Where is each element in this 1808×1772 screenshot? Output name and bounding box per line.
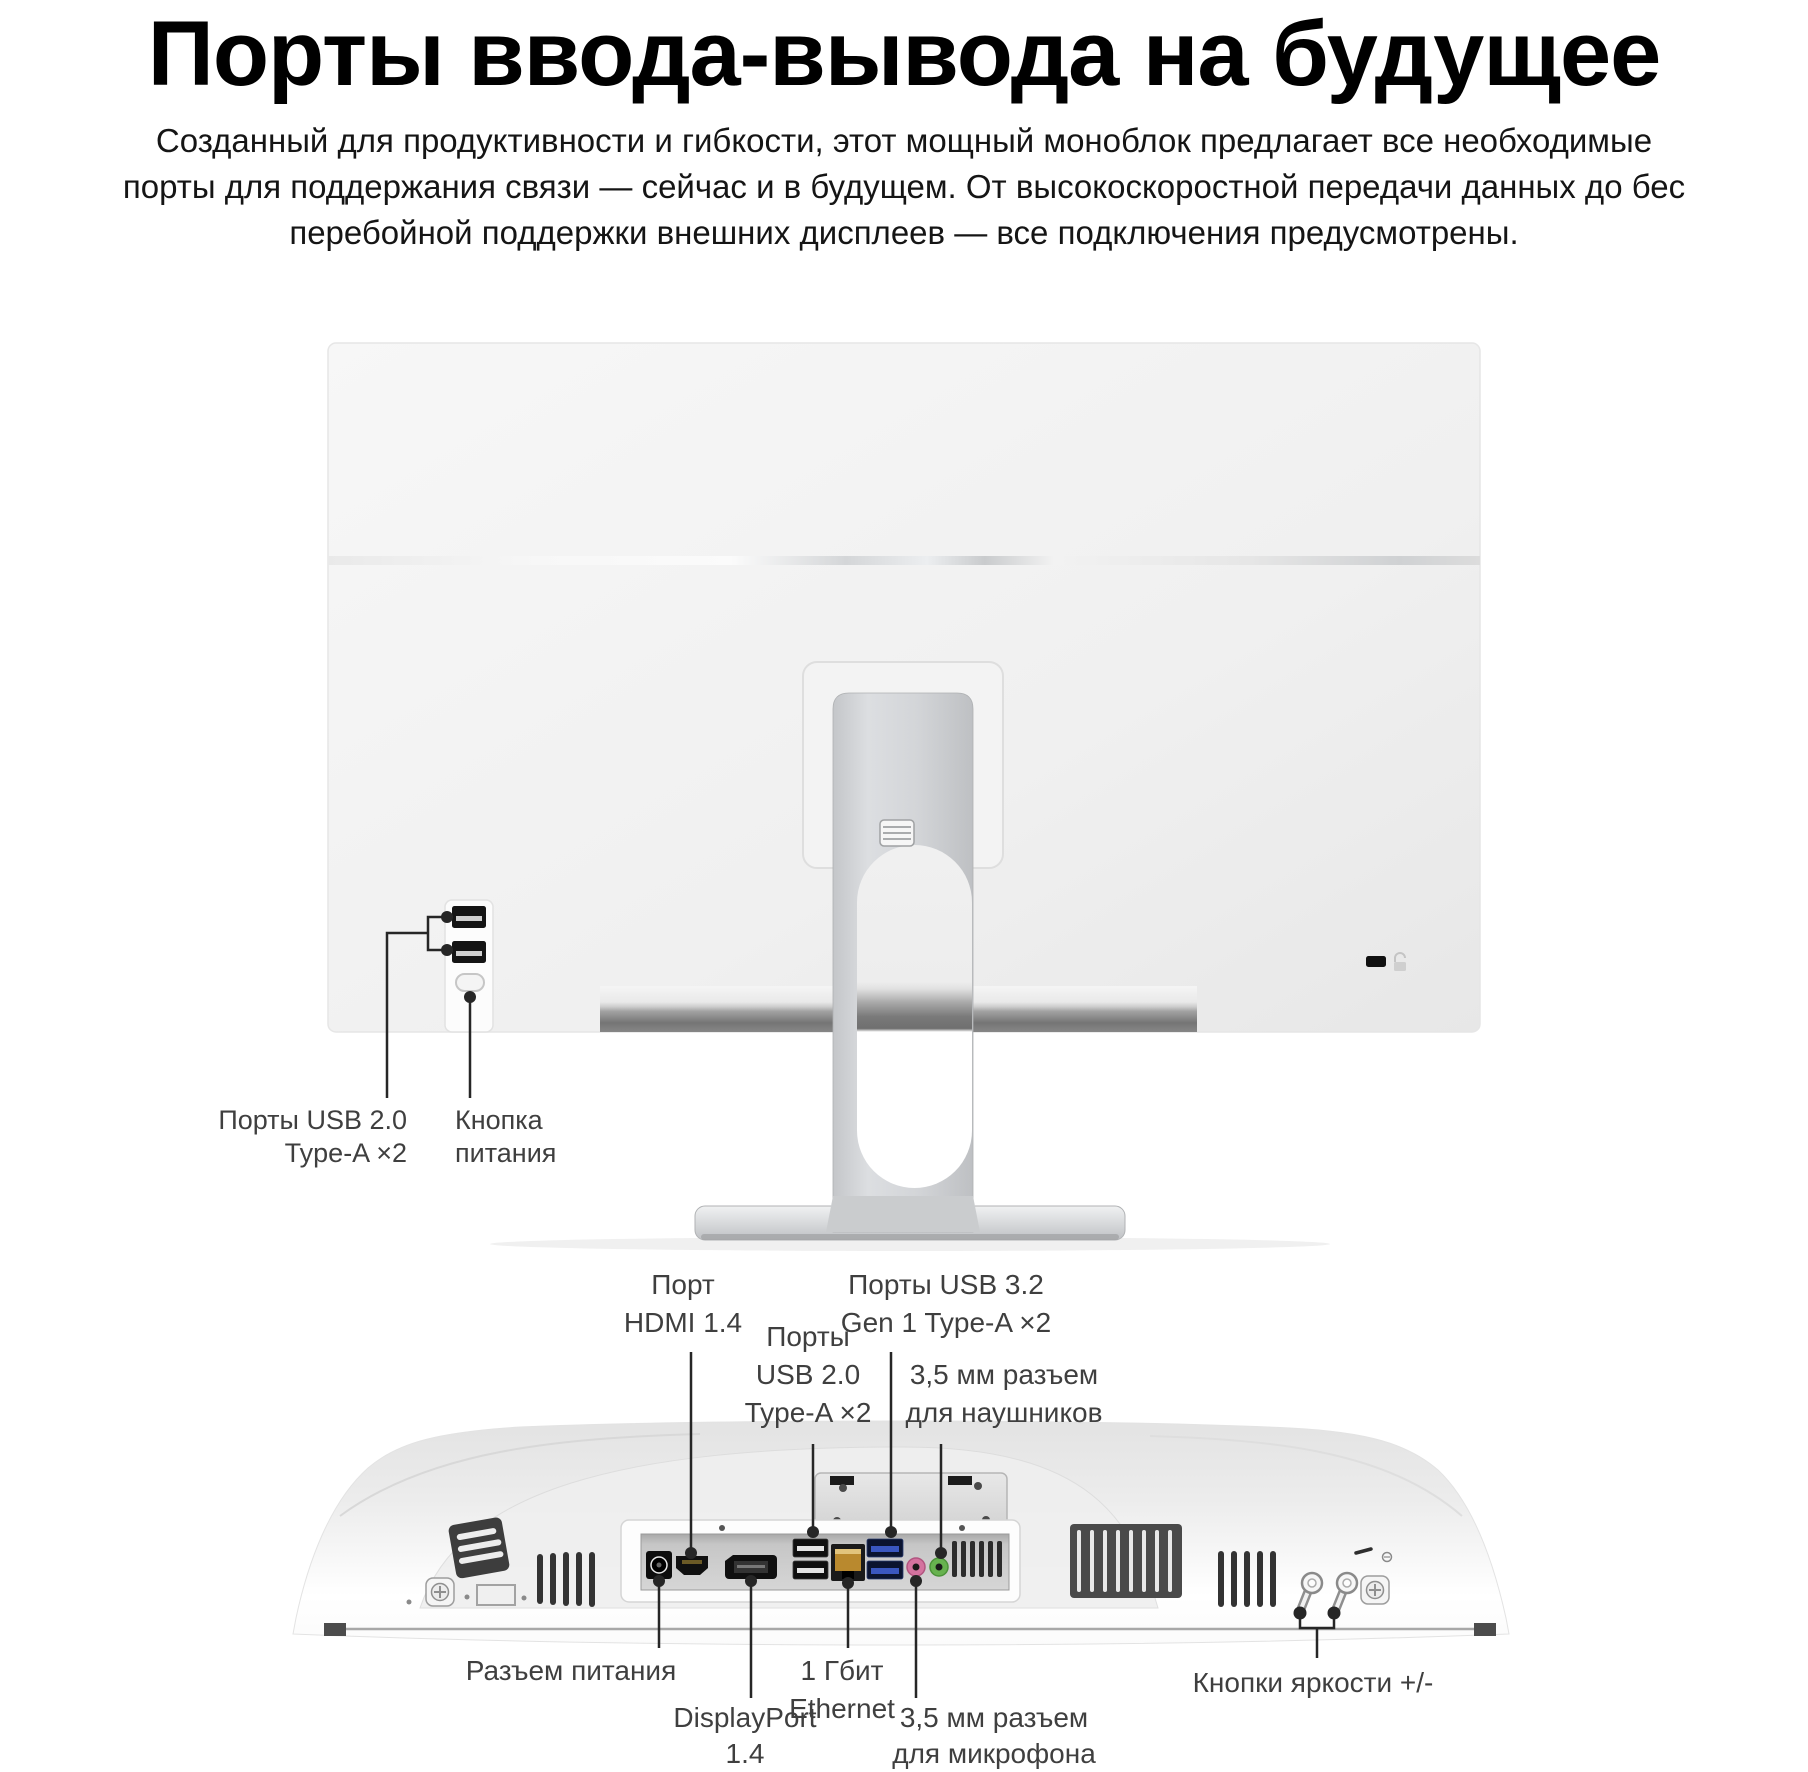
label-power-connector: Разъем питания xyxy=(466,1652,676,1690)
label-displayport: DisplayPort 1.4 xyxy=(673,1700,816,1772)
label-line: HDMI 1.4 xyxy=(624,1304,742,1342)
stand-base-lip xyxy=(701,1234,1119,1240)
intro-line: порты для поддержания связи — сейчас и в… xyxy=(123,164,1685,210)
stand-foot xyxy=(826,1196,980,1232)
usb2-port-icon xyxy=(793,1539,828,1557)
screw-dot xyxy=(719,1525,725,1531)
mic-jack-icon xyxy=(907,1558,925,1576)
label-line: Gen 1 Type-A ×2 xyxy=(841,1304,1051,1342)
product-illustrations xyxy=(0,0,1808,1768)
usb3-port-icon xyxy=(867,1561,903,1579)
label-line: 1 Гбит xyxy=(789,1652,895,1690)
label-line: USB 2.0 xyxy=(745,1356,872,1394)
intro-line: перебойной поддержки внешних дисплеев — … xyxy=(123,210,1685,256)
corner-notch xyxy=(324,1623,346,1636)
label-line: 3,5 мм разъем xyxy=(892,1700,1096,1736)
usb2-port-icon xyxy=(452,906,486,928)
back-seam-line xyxy=(328,556,1480,565)
kensington-lock-slot-icon xyxy=(1366,956,1386,967)
headphone-jack-icon xyxy=(930,1558,948,1576)
usb2-port-icon xyxy=(452,941,486,963)
label-line: Порты USB 2.0 xyxy=(218,1104,407,1137)
label-line: Порт xyxy=(624,1266,742,1304)
aio-bottom-view xyxy=(293,1352,1509,1698)
ethernet-port-icon xyxy=(831,1544,865,1581)
label-hdmi: Порт HDMI 1.4 xyxy=(624,1266,742,1342)
label-usb2-back: Порты USB 2.0 Type-A ×2 xyxy=(218,1104,407,1170)
usb3-port-icon xyxy=(867,1539,903,1557)
usb2-port-icon xyxy=(793,1561,828,1579)
stand-cable-cutout xyxy=(857,845,972,1188)
label-brightness: Кнопки яркости +/- xyxy=(1193,1664,1434,1702)
label-power-button: Кнопка питания xyxy=(455,1104,556,1170)
label-microphone: 3,5 мм разъем для микрофона xyxy=(892,1700,1096,1772)
speaker-grille-icon xyxy=(448,1517,511,1580)
label-line: DisplayPort xyxy=(673,1700,816,1736)
intro-paragraph: Созданный для продуктивности и гибкости,… xyxy=(123,118,1685,256)
vent-grille-right-large-icon xyxy=(1070,1524,1182,1598)
corner-notch xyxy=(1474,1623,1496,1636)
label-usb3: Порты USB 3.2 Gen 1 Type-A ×2 xyxy=(841,1266,1051,1342)
screw-dot xyxy=(959,1525,965,1531)
label-line: для наушников xyxy=(906,1394,1103,1432)
screw-icon xyxy=(426,1578,454,1606)
power-button-icon xyxy=(456,974,484,991)
label-line: 3,5 мм разъем xyxy=(906,1356,1103,1394)
label-line: 1.4 xyxy=(673,1736,816,1772)
label-line: Разъем питания xyxy=(466,1652,676,1690)
label-line: для микрофона xyxy=(892,1736,1096,1772)
screw-icon xyxy=(1361,1576,1389,1604)
label-line: Кнопки яркости +/- xyxy=(1193,1664,1434,1702)
page-title: Порты ввода-вывода на будущее xyxy=(148,4,1661,104)
dc-power-port-icon xyxy=(646,1551,672,1579)
label-line: Type-A ×2 xyxy=(218,1137,407,1170)
label-line: Порты USB 3.2 xyxy=(841,1266,1051,1304)
label-line: Type-A ×2 xyxy=(745,1394,872,1432)
marker-dot xyxy=(407,1600,412,1605)
label-headphone: 3,5 мм разъем для наушников xyxy=(906,1356,1103,1432)
cable-clip xyxy=(880,820,914,846)
label-line: Кнопка xyxy=(455,1104,556,1137)
label-line: питания xyxy=(455,1137,556,1170)
intro-line: Созданный для продуктивности и гибкости,… xyxy=(123,118,1685,164)
